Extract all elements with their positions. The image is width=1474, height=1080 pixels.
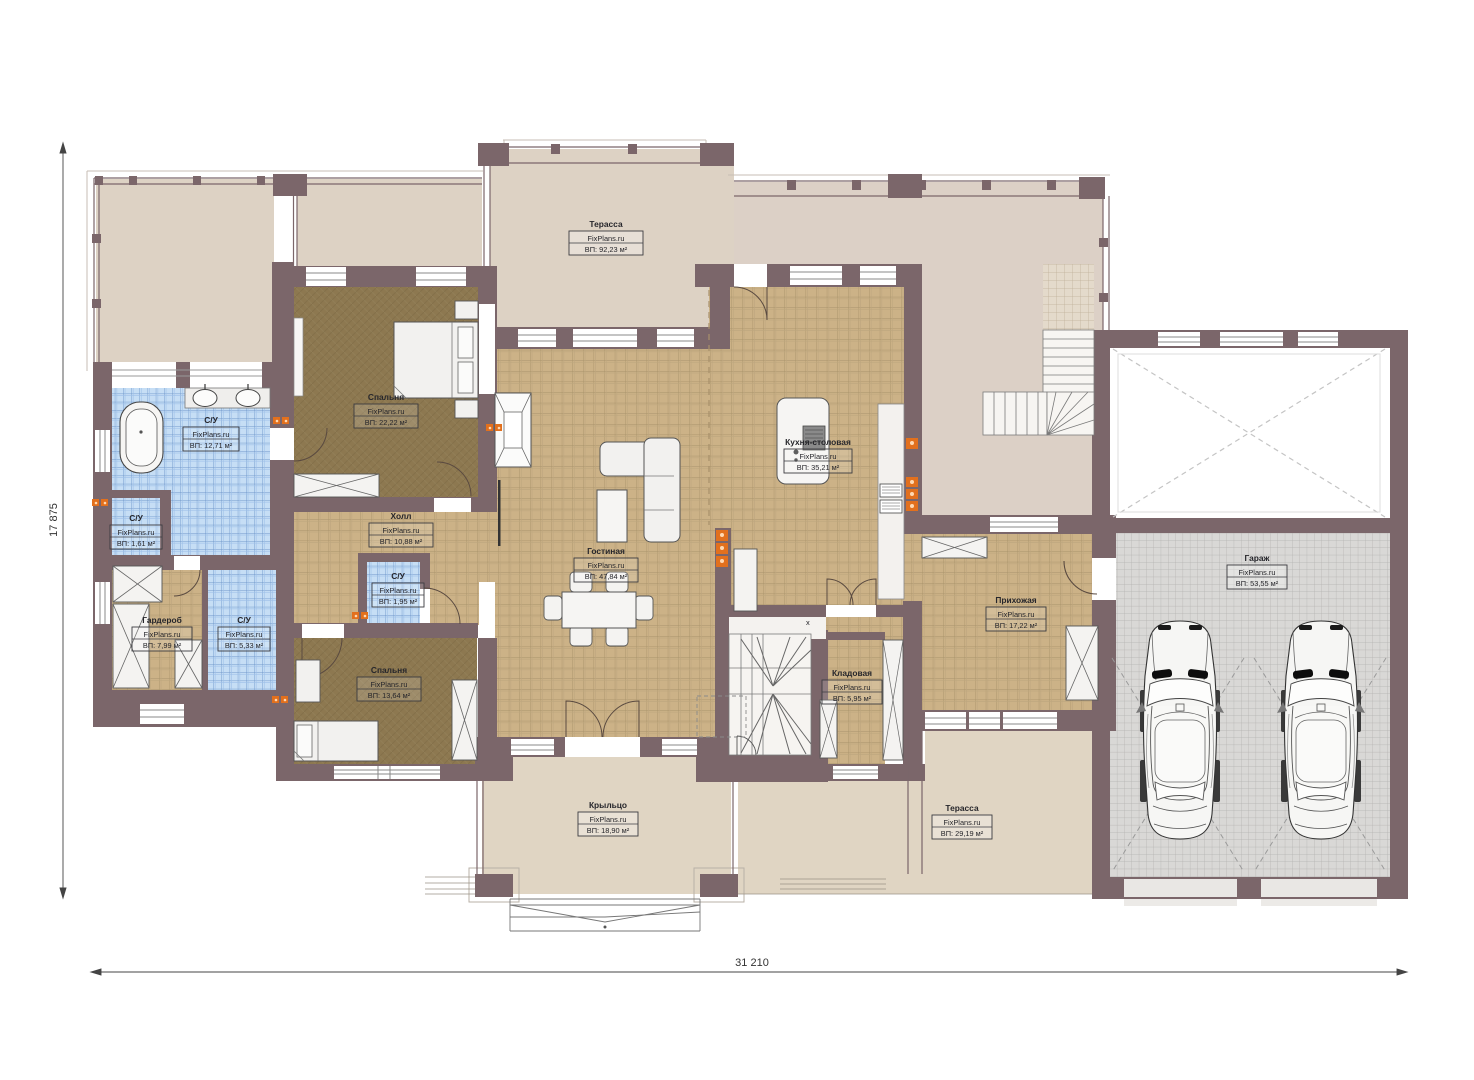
svg-text:FixPlans.ru: FixPlans.ru — [944, 818, 981, 827]
svg-text:Терасса: Терасса — [945, 803, 979, 813]
svg-text:Гардероб: Гардероб — [142, 615, 182, 625]
svg-text:ВП: 13,64 м²: ВП: 13,64 м² — [368, 691, 411, 700]
svg-text:x: x — [806, 618, 810, 627]
svg-text:ВП: 18,90 м²: ВП: 18,90 м² — [587, 826, 630, 835]
svg-text:FixPlans.ru: FixPlans.ru — [118, 528, 155, 537]
svg-text:ВП: 17,22 м²: ВП: 17,22 м² — [995, 621, 1038, 630]
svg-text:ВП: 5,33 м²: ВП: 5,33 м² — [225, 641, 264, 650]
svg-text:FixPlans.ru: FixPlans.ru — [380, 586, 417, 595]
svg-text:ВП: 1,61 м²: ВП: 1,61 м² — [117, 539, 156, 548]
svg-text:Кухня-столовая: Кухня-столовая — [785, 437, 851, 447]
svg-text:Крыльцо: Крыльцо — [589, 800, 627, 810]
svg-text:Спальня: Спальня — [371, 665, 407, 675]
svg-text:FixPlans.ru: FixPlans.ru — [588, 234, 625, 243]
svg-text:ВП: 92,23 м²: ВП: 92,23 м² — [585, 245, 628, 254]
svg-text:ВП: 7,99 м²: ВП: 7,99 м² — [143, 641, 182, 650]
svg-text:Терасса: Терасса — [589, 219, 623, 229]
svg-text:FixPlans.ru: FixPlans.ru — [1239, 568, 1276, 577]
svg-text:ВП: 1,95 м²: ВП: 1,95 м² — [379, 597, 418, 606]
svg-text:FixPlans.ru: FixPlans.ru — [998, 610, 1035, 619]
svg-text:FixPlans.ru: FixPlans.ru — [371, 680, 408, 689]
svg-text:ВП: 53,55 м²: ВП: 53,55 м² — [1236, 579, 1279, 588]
svg-text:Спальня: Спальня — [368, 392, 404, 402]
svg-text:С/У: С/У — [237, 615, 251, 625]
svg-text:FixPlans.ru: FixPlans.ru — [834, 683, 871, 692]
svg-text:ВП: 10,88 м²: ВП: 10,88 м² — [380, 537, 423, 546]
svg-text:FixPlans.ru: FixPlans.ru — [226, 630, 263, 639]
svg-text:Холл: Холл — [390, 511, 411, 521]
svg-text:31 210: 31 210 — [735, 957, 769, 969]
svg-text:С/У: С/У — [204, 415, 218, 425]
svg-text:FixPlans.ru: FixPlans.ru — [588, 561, 625, 570]
svg-text:С/У: С/У — [129, 513, 143, 523]
svg-text:ВП: 5,95 м²: ВП: 5,95 м² — [833, 694, 872, 703]
svg-text:Кладовая: Кладовая — [832, 668, 872, 678]
svg-text:FixPlans.ru: FixPlans.ru — [383, 526, 420, 535]
svg-text:ВП: 29,19 м²: ВП: 29,19 м² — [941, 829, 984, 838]
svg-text:17 875: 17 875 — [48, 503, 60, 537]
svg-text:С/У: С/У — [391, 571, 405, 581]
svg-text:FixPlans.ru: FixPlans.ru — [144, 630, 181, 639]
svg-text:FixPlans.ru: FixPlans.ru — [590, 815, 627, 824]
svg-text:Прихожая: Прихожая — [995, 595, 1036, 605]
svg-text:FixPlans.ru: FixPlans.ru — [800, 452, 837, 461]
svg-text:FixPlans.ru: FixPlans.ru — [368, 407, 405, 416]
svg-text:ВП: 35,21 м²: ВП: 35,21 м² — [797, 463, 840, 472]
svg-text:ВП: 22,22 м²: ВП: 22,22 м² — [365, 418, 408, 427]
svg-text:Гараж: Гараж — [1244, 553, 1269, 563]
svg-text:Гостиная: Гостиная — [587, 546, 625, 556]
svg-text:ВП: 47,84 м²: ВП: 47,84 м² — [585, 572, 628, 581]
svg-text:FixPlans.ru: FixPlans.ru — [193, 430, 230, 439]
svg-text:ВП: 12,71 м²: ВП: 12,71 м² — [190, 441, 233, 450]
